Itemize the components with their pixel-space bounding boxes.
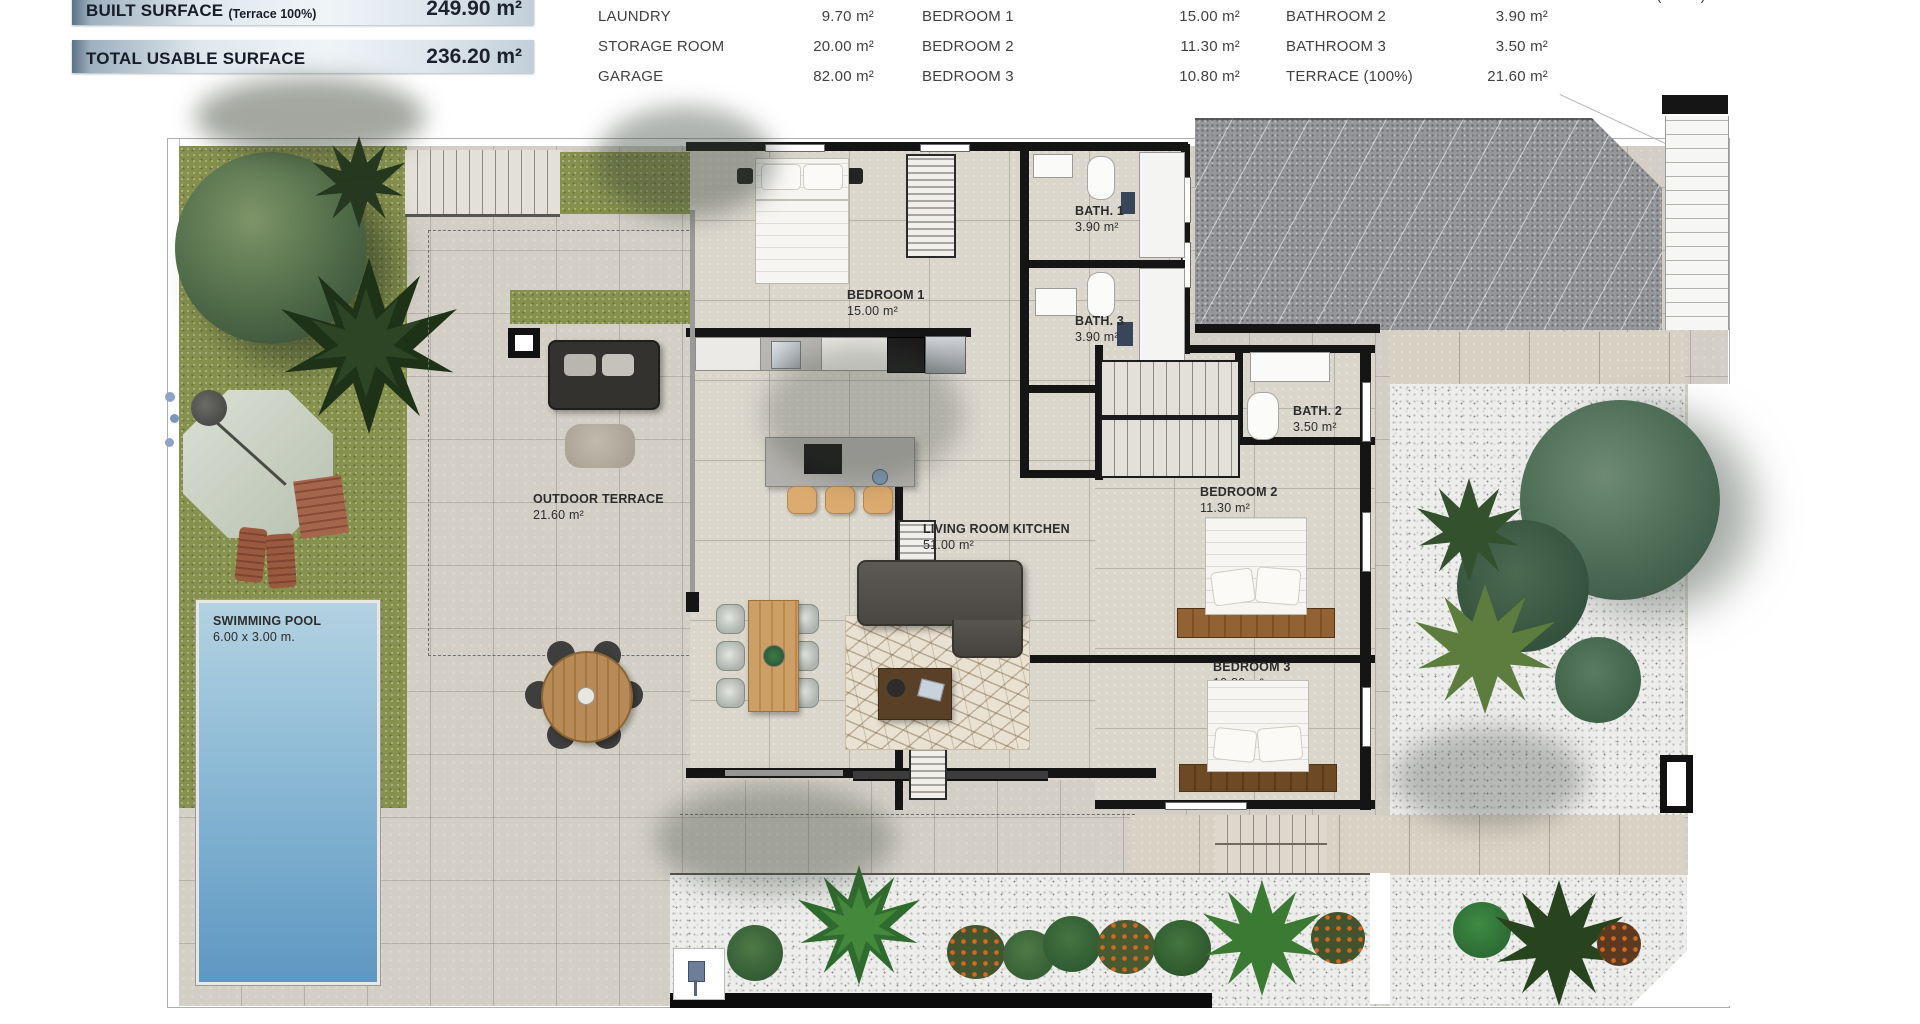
utility-pad	[673, 948, 725, 1000]
area-row: BEDROOM 115.00 m²	[922, 8, 1240, 27]
swimming-pool	[196, 600, 380, 985]
bath2-sink-counter	[1250, 352, 1330, 382]
stairs-handrail	[1215, 843, 1327, 845]
wall-bath1-bath3	[1025, 260, 1185, 268]
wall-hall-south	[1020, 470, 1105, 478]
corner-bush	[1453, 902, 1511, 958]
built-surface-sublabel: (Terrace 100%)	[228, 7, 316, 21]
blue-flower	[165, 438, 174, 447]
area-column-1: LAUNDRY9.70 m² STORAGE ROOM20.00 m² GARA…	[598, 0, 874, 92]
area-column-4: SOLARIUM (100%)70.00 m²	[1572, 0, 1882, 92]
area-column-3: BATHROOM 13.90 m² BATHROOM 23.90 m² BATH…	[1286, 0, 1548, 92]
sofa-cushion	[564, 354, 596, 376]
planter-shrub-orange	[947, 925, 1005, 979]
walkway-east-upper	[1390, 332, 1685, 384]
room-label-bath3: BATH. 33.90 m²	[1075, 314, 1124, 345]
outdoor-dining-set	[519, 633, 651, 757]
area-row: GARAGE82.00 m²	[598, 68, 874, 87]
bar-stool	[787, 486, 817, 514]
table-centerpiece	[577, 687, 595, 705]
canopy-shadow	[1395, 728, 1585, 828]
window-north	[920, 144, 970, 152]
table-book	[917, 678, 945, 701]
built-surface-label: BUILT SURFACE	[86, 1, 223, 21]
entry-stairs	[405, 150, 560, 217]
side-stairs	[1665, 116, 1729, 330]
wardrobe-bedroom1	[906, 154, 956, 258]
nightstand	[847, 168, 863, 184]
canopy-shadow	[655, 784, 895, 894]
outdoor-terrace-outline	[428, 230, 694, 656]
built-surface-value: 249.90 m²	[426, 0, 522, 21]
bath1-sink	[1033, 154, 1073, 178]
pillow	[803, 164, 843, 190]
dining-chair	[716, 641, 745, 671]
room-label-living-room: LIVING ROOM KITCHEN51.00 m²	[923, 522, 1070, 553]
walkway-stairs	[1215, 815, 1327, 875]
fence-pillar	[1660, 755, 1693, 813]
floorplan-screenshot: BUILT SURFACE (Terrace 100%) 249.90 m² T…	[0, 0, 1920, 1024]
bush-east	[1555, 637, 1641, 723]
ottoman-pouf	[565, 424, 635, 468]
sliding-door-glass	[725, 770, 843, 776]
pillow	[1212, 727, 1257, 763]
pillow	[1210, 567, 1256, 607]
interior-staircase	[1100, 360, 1240, 478]
bath1-shower	[1139, 152, 1185, 258]
planter-shrub-orange	[1311, 912, 1365, 964]
utility-post-stem	[694, 980, 697, 996]
planter-shrub-orange	[1097, 920, 1155, 974]
garage-roof	[1195, 118, 1662, 330]
floor-plan: SWIMMING POOL6.00 x 3.00 m. OUTDOOR TERR…	[165, 92, 1730, 1010]
planter-bush	[1043, 916, 1101, 972]
built-surface-banner: BUILT SURFACE (Terrace 100%) 249.90 m²	[72, 0, 534, 25]
sofa	[857, 560, 1023, 626]
table-decor	[887, 679, 905, 697]
room-label-outdoor-terrace: OUTDOOR TERRACE21.60 m²	[533, 492, 664, 523]
room-label-swimming-pool: SWIMMING POOL6.00 x 3.00 m.	[213, 614, 321, 645]
bed-bedroom3	[1207, 680, 1309, 772]
pillow	[1255, 566, 1302, 606]
sofa-cushion	[602, 354, 634, 376]
area-row: LAUNDRY9.70 m²	[598, 8, 874, 27]
window-bedroom3	[1362, 687, 1371, 747]
window-bedroom2	[1362, 382, 1371, 442]
area-column-2: LIVING ROOM KITCHEN51.00 m² BEDROOM 115.…	[922, 0, 1240, 92]
area-row: TERRACE (100%)21.60 m²	[1286, 68, 1548, 87]
walkway-south	[1130, 815, 1685, 875]
duvet-fold	[756, 199, 848, 201]
bar-stool	[825, 486, 855, 514]
coffee-table	[878, 668, 952, 720]
wall-bath-corridor	[1020, 144, 1029, 394]
pillow	[1257, 725, 1304, 763]
blue-flower	[165, 392, 175, 402]
window-north	[765, 144, 825, 152]
staircase-landing-divider	[1102, 415, 1238, 420]
glass-wall-west	[690, 210, 695, 600]
wall-solarium-stairs-top	[1662, 95, 1728, 114]
sun-lounger	[234, 527, 267, 584]
canopy-shadow	[195, 77, 425, 157]
total-usable-banner: TOTAL USABLE SURFACE 236.20 m²	[72, 40, 534, 73]
blue-flower	[170, 414, 179, 423]
planter-divider	[1370, 873, 1390, 1004]
outdoor-sofa	[548, 340, 660, 410]
area-row: BEDROOM 211.30 m²	[922, 38, 1240, 57]
dining-chair	[716, 678, 745, 708]
canopy-shadow	[763, 344, 963, 484]
room-label-bedroom2: BEDROOM 211.30 m²	[1200, 485, 1278, 516]
wall-garage-south	[1195, 324, 1380, 333]
area-row: BEDROOM 310.80 m²	[922, 68, 1240, 87]
room-label-bath2: BATH. 23.50 m²	[1293, 404, 1342, 435]
room-label-bath1: BATH. 13.90 m²	[1075, 204, 1124, 235]
pergola-pillar	[508, 328, 540, 358]
bar-stool	[863, 486, 893, 514]
total-usable-value: 236.20 m²	[426, 45, 522, 69]
bath3-sink	[1035, 288, 1077, 316]
area-row-clipped: BATHROOM 13.90 m²	[1286, 0, 1548, 6]
area-row: BATHROOM 23.90 m²	[1286, 8, 1548, 27]
wall-hall-west	[1020, 390, 1029, 478]
room-label-bedroom1: BEDROOM 115.00 m²	[847, 288, 925, 319]
window-bedroom3-south	[1165, 802, 1247, 810]
sliding-door-main	[853, 769, 1048, 781]
area-row-clipped: LIVING ROOM KITCHEN51.00 m²	[922, 0, 1240, 6]
dining-chair	[716, 604, 745, 634]
pillar-west	[686, 592, 699, 612]
wood-deck	[293, 475, 349, 539]
area-row: STORAGE ROOM20.00 m²	[598, 38, 874, 57]
planter-bush	[1153, 920, 1211, 976]
corner-shrub-red	[1597, 922, 1641, 966]
utility-post	[688, 961, 705, 982]
bed-bedroom2	[1205, 517, 1307, 615]
perimeter-wall-south	[670, 993, 1212, 1008]
dining-table	[748, 600, 799, 712]
parasol-base	[191, 390, 227, 426]
area-row: BATHROOM 33.50 m²	[1286, 38, 1548, 57]
planter-bush	[727, 925, 783, 981]
bath1-toilet	[1087, 156, 1115, 200]
sun-lounger	[265, 533, 297, 589]
total-usable-label: TOTAL USABLE SURFACE	[86, 49, 305, 69]
canopy-shadow	[595, 106, 775, 218]
area-row-clipped: SOLARIUM (100%)70.00 m²	[1572, 0, 1882, 6]
bath3-toilet	[1087, 272, 1115, 318]
sofa-chaise	[952, 620, 1023, 658]
table-centerpiece-plant	[763, 645, 785, 667]
bath2-toilet	[1247, 392, 1279, 440]
window-bedroom2	[1362, 512, 1371, 572]
